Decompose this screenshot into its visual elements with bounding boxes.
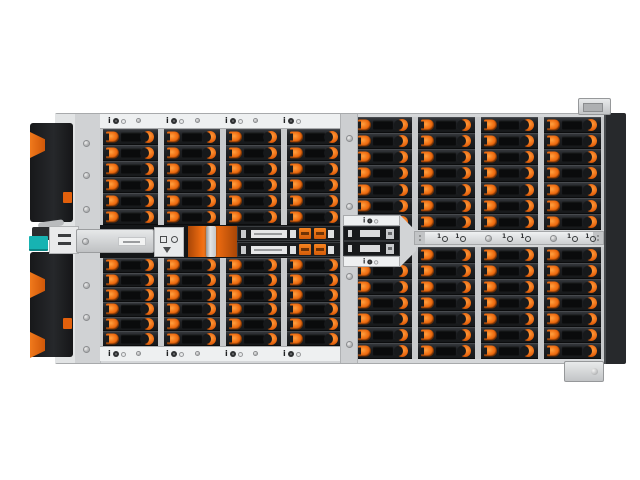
tray-pin — [328, 230, 334, 238]
drive-latch-orange — [358, 330, 371, 341]
drive-top — [305, 261, 325, 270]
drive-release-ring — [142, 303, 154, 315]
drive-top — [436, 137, 456, 146]
drive-latch-orange — [484, 346, 497, 357]
drive-top — [373, 267, 393, 276]
drive-release-ring — [265, 274, 277, 286]
connector-body — [49, 226, 79, 254]
open-dot-icon — [238, 352, 243, 357]
drive-top — [499, 217, 519, 226]
drive-top — [562, 217, 582, 226]
drive-latch-orange — [421, 330, 434, 341]
drive-top — [121, 181, 141, 190]
drive-latch-orange — [358, 136, 371, 147]
drive-bay — [418, 214, 475, 230]
grid-icon — [160, 236, 167, 243]
drive-bay — [103, 161, 158, 177]
drive-top — [373, 121, 393, 130]
drive-bay — [164, 145, 219, 161]
drive-top — [499, 347, 519, 356]
drive-release-ring — [142, 163, 154, 175]
drive-bay — [481, 214, 538, 230]
drive-top — [244, 149, 264, 158]
drive-latch-orange — [358, 200, 371, 211]
drive-latch-orange — [290, 212, 303, 223]
drive-latch-orange — [484, 120, 497, 131]
drive-top — [121, 276, 141, 285]
drive-release-ring — [459, 119, 471, 131]
drive-bank-left-bottom — [100, 258, 345, 346]
filled-dot-icon — [367, 259, 372, 264]
drive-release-ring — [459, 281, 471, 293]
drive-latch-orange — [547, 200, 560, 211]
drive-release-ring — [522, 200, 534, 212]
tray-label — [251, 230, 287, 238]
drive-column — [164, 258, 219, 346]
drive-bay — [418, 117, 475, 133]
drive-bay — [103, 209, 158, 225]
drive-latch-orange — [106, 164, 119, 175]
drive-top — [244, 213, 264, 222]
drive-latch-orange — [290, 333, 303, 344]
drive-latch-orange — [167, 180, 180, 191]
orange-clip — [314, 228, 326, 239]
drive-release-ring — [142, 147, 154, 159]
drive-release-ring — [204, 211, 216, 223]
drive-bay — [103, 317, 158, 332]
drive-release-ring — [396, 135, 408, 147]
drive-latch-orange — [421, 346, 434, 357]
drive-latch-orange — [547, 136, 560, 147]
orange-accent-chip — [63, 192, 72, 203]
drive-bay — [355, 165, 412, 181]
drive-bay — [103, 287, 158, 302]
left-cable-panel-bottom — [30, 252, 73, 357]
drive-top — [436, 201, 456, 210]
drive-bay — [103, 129, 158, 145]
drive-bay — [481, 343, 538, 359]
drive-bay — [481, 165, 538, 181]
bay-indicator-icon: 1 — [567, 234, 578, 242]
drive-release-ring — [204, 259, 216, 271]
drive-release-ring — [326, 303, 338, 315]
drive-top — [436, 315, 456, 324]
drive-top — [305, 165, 325, 174]
drive-latch-orange — [484, 298, 497, 309]
drive-column — [418, 247, 475, 359]
drive-index-icon: i — [108, 117, 126, 125]
drive-bay — [103, 273, 158, 288]
drive-release-ring — [459, 184, 471, 196]
drive-top — [436, 217, 456, 226]
center-boot-tray — [343, 241, 400, 256]
drive-bay — [481, 327, 538, 343]
drive-latch-orange — [358, 120, 371, 131]
drive-release-ring — [459, 135, 471, 147]
drive-top — [562, 283, 582, 292]
drive-latch-orange — [290, 148, 303, 159]
screw-icon — [84, 283, 89, 288]
drive-latch-orange — [229, 304, 242, 315]
drive-bay — [418, 263, 475, 279]
drive-column — [481, 117, 538, 230]
drive-bay — [287, 177, 342, 193]
drive-latch-orange — [421, 266, 434, 277]
drive-bay — [481, 182, 538, 198]
drive-bay — [544, 198, 601, 214]
drive-latch-orange — [421, 200, 434, 211]
drive-top — [436, 267, 456, 276]
drive-top — [305, 181, 325, 190]
drive-bay — [481, 247, 538, 263]
tray-pin — [290, 246, 296, 254]
drive-latch-orange — [229, 319, 242, 330]
drive-top — [373, 299, 393, 308]
drive-release-ring — [142, 179, 154, 191]
drive-latch-orange — [547, 216, 560, 227]
drive-column — [418, 117, 475, 230]
drive-latch-orange — [106, 304, 119, 315]
drive-bay — [544, 311, 601, 327]
drive-latch-orange — [229, 212, 242, 223]
screw-icon — [84, 315, 89, 320]
drive-latch-orange — [106, 148, 119, 159]
drive-top — [562, 251, 582, 260]
drive-latch-orange — [167, 132, 180, 143]
drive-release-ring — [265, 131, 277, 143]
drive-release-ring — [585, 135, 597, 147]
drive-top — [373, 283, 393, 292]
drive-latch-orange — [290, 164, 303, 175]
screw-icon — [83, 239, 88, 244]
open-dot-icon — [238, 119, 243, 124]
drive-release-ring — [396, 281, 408, 293]
filled-dot-icon — [113, 118, 119, 124]
drive-release-ring — [204, 163, 216, 175]
drive-index-icon: i — [363, 259, 378, 266]
drive-top — [562, 121, 582, 130]
filled-dot-icon — [367, 218, 372, 223]
drive-release-ring — [396, 345, 408, 357]
drive-bay — [355, 182, 412, 198]
drive-latch-orange — [106, 132, 119, 143]
center-module-bottom-strip: i — [343, 256, 400, 267]
filled-dot-icon — [171, 351, 177, 357]
drive-latch-orange — [106, 180, 119, 191]
drive-bay — [544, 165, 601, 181]
drive-top — [182, 149, 202, 158]
drive-latch-orange — [547, 298, 560, 309]
drive-latch-orange — [229, 180, 242, 191]
drive-column — [226, 129, 281, 225]
drive-bay — [481, 149, 538, 165]
tray-label — [251, 246, 287, 254]
drive-top — [305, 305, 325, 314]
drive-release-ring — [459, 151, 471, 163]
drive-latch-orange — [484, 152, 497, 163]
drive-latch-orange — [106, 289, 119, 300]
drive-release-ring — [204, 179, 216, 191]
drive-top — [373, 153, 393, 162]
drive-release-ring — [396, 329, 408, 341]
drive-bay — [226, 258, 281, 273]
drive-top — [182, 197, 202, 206]
open-dot-icon — [179, 119, 184, 124]
drive-bay — [287, 145, 342, 161]
drive-top — [305, 276, 325, 285]
drive-top — [499, 251, 519, 260]
drive-bay — [544, 295, 601, 311]
drive-release-ring — [142, 259, 154, 271]
drive-top — [562, 201, 582, 210]
drive-release-ring — [142, 274, 154, 286]
drive-top — [436, 251, 456, 260]
drive-release-ring — [522, 135, 534, 147]
center-module-top-strip: i — [343, 215, 400, 226]
drive-bay — [226, 317, 281, 332]
drive-latch-orange — [106, 275, 119, 286]
drive-latch-orange — [421, 168, 434, 179]
drive-top — [244, 290, 264, 299]
drive-release-ring — [522, 281, 534, 293]
drive-bay — [418, 133, 475, 149]
drive-column — [287, 129, 342, 225]
drive-top — [373, 315, 393, 324]
drive-latch-orange — [547, 314, 560, 325]
drive-bay — [287, 193, 342, 209]
rail-bracket-bottom-right — [564, 361, 604, 382]
drive-latch-orange — [421, 298, 434, 309]
drive-latch-orange — [106, 319, 119, 330]
filled-dot-icon — [113, 351, 119, 357]
drive-bank-left-top — [100, 129, 345, 225]
drive-column — [103, 258, 158, 346]
drive-latch-orange — [547, 120, 560, 131]
drive-latch-orange — [421, 136, 434, 147]
orange-accent-wedge — [30, 332, 45, 358]
drive-release-ring — [522, 216, 534, 228]
drive-index-icon: i — [283, 350, 301, 358]
drive-latch-orange — [358, 314, 371, 325]
drive-top — [244, 261, 264, 270]
drive-release-ring — [326, 274, 338, 286]
drive-latch-orange — [358, 184, 371, 195]
drive-column — [481, 247, 538, 359]
drive-release-ring — [142, 195, 154, 207]
drive-index-icon: i — [283, 117, 301, 125]
drive-top — [244, 181, 264, 190]
drive-bay — [544, 263, 601, 279]
drive-bay — [226, 209, 281, 225]
drive-bay — [355, 198, 412, 214]
drive-bay — [481, 133, 538, 149]
drive-top — [373, 347, 393, 356]
drive-release-ring — [585, 345, 597, 357]
drive-release-ring — [396, 313, 408, 325]
drive-release-ring — [396, 119, 408, 131]
indicator-module — [154, 227, 184, 257]
drive-latch-orange — [167, 333, 180, 344]
drive-latch-orange — [547, 346, 560, 357]
drive-latch-orange — [547, 250, 560, 261]
drive-latch-orange — [290, 180, 303, 191]
drive-bay — [544, 182, 601, 198]
drive-bay — [226, 177, 281, 193]
drive-top — [499, 331, 519, 340]
drive-top — [182, 133, 202, 142]
ssd-tray-group — [237, 226, 345, 257]
drive-bay — [103, 145, 158, 161]
drive-release-ring — [265, 333, 277, 345]
drive-top — [182, 261, 202, 270]
drive-release-ring — [459, 167, 471, 179]
bay-indicator-icon: 1 — [520, 234, 531, 242]
drive-latch-orange — [229, 148, 242, 159]
drive-latch-orange — [167, 260, 180, 271]
drive-release-ring — [326, 259, 338, 271]
drive-top — [121, 213, 141, 222]
drive-release-ring — [265, 318, 277, 330]
drive-index-icon: i — [225, 117, 243, 125]
drive-release-ring — [204, 274, 216, 286]
drive-top — [373, 169, 393, 178]
circle-icon — [171, 236, 178, 243]
drive-release-ring — [326, 147, 338, 159]
drive-top — [562, 331, 582, 340]
drive-top — [499, 121, 519, 130]
drive-bay — [418, 279, 475, 295]
drive-bay — [418, 295, 475, 311]
drive-release-ring — [585, 151, 597, 163]
drive-latch-orange — [358, 266, 371, 277]
rail-bracket-top-right — [578, 98, 611, 115]
drive-latch-orange — [167, 275, 180, 286]
drive-bay — [287, 129, 342, 145]
drive-release-ring — [585, 313, 597, 325]
drive-release-ring — [585, 249, 597, 261]
orange-accent-chip — [63, 318, 72, 329]
drive-top — [436, 331, 456, 340]
drive-release-ring — [142, 289, 154, 301]
drive-release-ring — [522, 313, 534, 325]
drive-top — [182, 213, 202, 222]
drive-bay — [418, 182, 475, 198]
drive-latch-orange — [547, 184, 560, 195]
drive-bay — [418, 247, 475, 263]
drive-top — [121, 305, 141, 314]
drive-bay — [103, 193, 158, 209]
open-dot-icon — [179, 352, 184, 357]
filled-dot-icon — [230, 351, 236, 357]
drive-bay — [164, 129, 219, 145]
drive-top — [121, 320, 141, 329]
drive-release-ring — [396, 200, 408, 212]
drive-index-icon: i — [363, 218, 378, 225]
orange-clip — [314, 244, 326, 255]
drive-top — [499, 201, 519, 210]
drive-release-ring — [522, 265, 534, 277]
open-dot-icon — [296, 352, 301, 357]
drive-top — [499, 153, 519, 162]
drive-top — [121, 197, 141, 206]
drive-index-icon: i — [166, 117, 184, 125]
drive-release-ring — [459, 200, 471, 212]
drive-top — [121, 334, 141, 343]
drive-top — [121, 165, 141, 174]
bay-indicator-icon: 1 — [437, 234, 448, 242]
drive-bay — [418, 327, 475, 343]
drive-index-icon: i — [225, 350, 243, 358]
teal-connector — [29, 236, 48, 251]
drive-top — [182, 320, 202, 329]
drive-top — [562, 137, 582, 146]
drive-top — [182, 305, 202, 314]
drive-top — [499, 315, 519, 324]
drive-index-icon: i — [108, 350, 126, 358]
drive-top — [244, 276, 264, 285]
drive-bay — [355, 343, 412, 359]
drive-bay — [481, 279, 538, 295]
drive-latch-orange — [229, 275, 242, 286]
drive-bay — [226, 287, 281, 302]
drive-bay — [287, 209, 342, 225]
drive-release-ring — [265, 147, 277, 159]
drive-release-ring — [459, 297, 471, 309]
drive-latch-orange — [229, 260, 242, 271]
drive-release-ring — [265, 179, 277, 191]
drive-bay — [164, 302, 219, 317]
drive-latch-orange — [290, 260, 303, 271]
drive-release-ring — [204, 131, 216, 143]
drive-bay — [164, 331, 219, 346]
drive-top — [305, 213, 325, 222]
drive-release-ring — [585, 329, 597, 341]
drive-latch-orange — [421, 216, 434, 227]
drive-latch-orange — [358, 282, 371, 293]
drive-bay — [164, 258, 219, 273]
drive-top — [562, 185, 582, 194]
drive-release-ring — [522, 345, 534, 357]
drive-bay — [481, 311, 538, 327]
drive-bank-right-top — [352, 117, 604, 230]
tray-pin — [328, 246, 334, 254]
filled-dot-icon — [288, 118, 294, 124]
drive-release-ring — [585, 281, 597, 293]
drive-bay — [103, 302, 158, 317]
drive-top — [562, 299, 582, 308]
drive-release-ring — [326, 131, 338, 143]
drive-latch-orange — [484, 282, 497, 293]
drive-latch-orange — [547, 152, 560, 163]
drive-latch-orange — [484, 200, 497, 211]
drive-latch-orange — [484, 330, 497, 341]
drive-top — [436, 169, 456, 178]
filled-dot-icon — [171, 118, 177, 124]
drive-top — [436, 121, 456, 130]
drive-release-ring — [522, 184, 534, 196]
drive-latch-orange — [167, 289, 180, 300]
drive-latch-orange — [547, 266, 560, 277]
drive-top — [499, 267, 519, 276]
drive-top — [373, 137, 393, 146]
drive-latch-orange — [421, 184, 434, 195]
drive-top — [436, 299, 456, 308]
drive-release-ring — [459, 329, 471, 341]
handle-grip — [206, 226, 216, 257]
drive-release-ring — [522, 119, 534, 131]
drive-bay — [544, 149, 601, 165]
drive-latch-orange — [358, 298, 371, 309]
